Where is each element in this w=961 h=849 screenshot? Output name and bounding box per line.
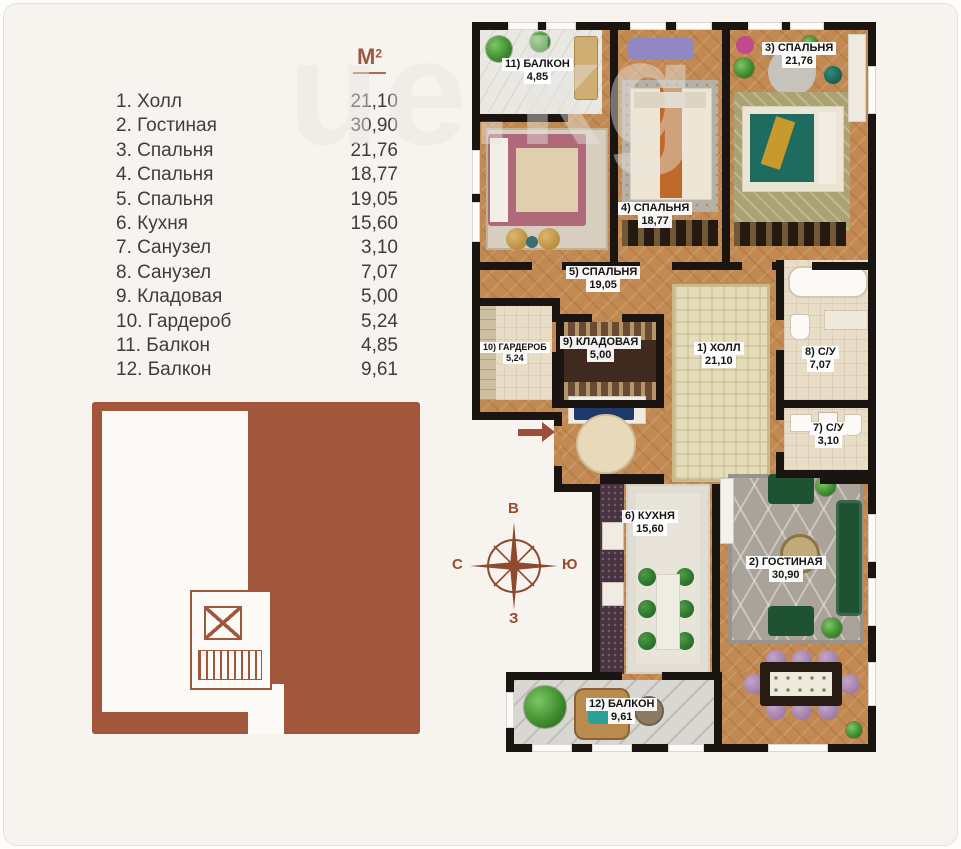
window	[506, 692, 514, 728]
legend-room-name: 1. Холл	[116, 90, 182, 114]
compass-north-label: С	[452, 556, 463, 573]
legend-row: 2. Гостиная30,90	[116, 114, 398, 138]
bedroom3-chair	[736, 36, 754, 54]
plant-icon	[846, 722, 862, 738]
window	[868, 514, 876, 562]
legend-room-name: 5. Спальня	[116, 188, 213, 212]
wall	[776, 400, 868, 408]
kitchen-table	[656, 574, 680, 650]
bedroom4-lounge	[628, 38, 694, 60]
legend-room-name: 11. Балкон	[116, 334, 210, 358]
area-unit-header: М2	[353, 44, 386, 74]
wall	[776, 452, 784, 470]
kitchen-chair	[638, 600, 656, 618]
unit-exponent: 2	[375, 47, 382, 61]
legend-row: 7. Санузел3,10	[116, 236, 398, 260]
legend-room-area: 5,00	[361, 285, 398, 309]
window	[868, 66, 876, 114]
kitchen-chair	[638, 568, 656, 586]
legend-row: 12. Балкон9,61	[116, 358, 398, 382]
legend-room-area: 7,07	[361, 261, 398, 285]
legend-row: 9. Кладовая5,00	[116, 285, 398, 309]
wall	[480, 114, 568, 122]
bedroom5-pillows	[490, 138, 508, 222]
wall	[672, 262, 742, 270]
window	[868, 662, 876, 706]
kitchen-sink	[602, 582, 624, 606]
legend-row: 3. Спальня21,76	[116, 139, 398, 163]
window	[630, 22, 666, 30]
legend-room-area: 15,60	[350, 212, 398, 236]
window	[472, 150, 480, 194]
wall	[722, 30, 730, 262]
bathtub	[788, 266, 868, 298]
legend-room-name: 3. Спальня	[116, 139, 213, 163]
bedroom5-side-table	[526, 236, 538, 248]
room-label-balcony-11: 11) БАЛКОН4,85	[502, 58, 573, 84]
room-label-storage-9: 9) КЛАДОВАЯ5,00	[560, 336, 641, 362]
legend-row: 6. Кухня15,60	[116, 212, 398, 236]
legend-row: 1. Холл21,10	[116, 90, 398, 114]
legend-room-name: 10. Гардероб	[116, 310, 231, 334]
legend-room-area: 21,76	[350, 139, 398, 163]
window	[868, 578, 876, 626]
entry-round-rug	[576, 414, 636, 474]
window	[508, 22, 538, 30]
wall	[656, 322, 664, 408]
room-label-bedroom-5: 5) СПАЛЬНЯ19,05	[566, 266, 640, 292]
legend-room-name: 9. Кладовая	[116, 285, 222, 309]
bedroom5-quilt	[516, 148, 578, 212]
plant-icon	[734, 58, 754, 78]
room-label-bedroom-3: 3) СПАЛЬНЯ21,76	[762, 42, 836, 68]
stairs-icon	[198, 650, 262, 680]
legend-room-area: 5,24	[361, 310, 398, 334]
bedroom5-armchair	[538, 228, 560, 250]
window	[532, 744, 572, 752]
legend-room-name: 12. Балкон	[116, 358, 211, 382]
apartment-floorplan: 11) БАЛКОН4,85 3) СПАЛЬНЯ21,76 4) СПАЛЬН…	[472, 22, 876, 752]
building-notch	[248, 684, 284, 734]
wall	[556, 322, 564, 408]
wall	[480, 298, 560, 306]
kitchen-stove	[602, 522, 624, 550]
window	[676, 22, 712, 30]
hall-rug	[672, 284, 770, 482]
entrance-arrow-icon	[518, 429, 542, 436]
kitchen-chair	[638, 632, 656, 650]
kitchen-counter	[600, 484, 624, 674]
legend-room-area: 9,61	[361, 358, 398, 382]
legend-room-name: 6. Кухня	[116, 212, 188, 236]
legend-room-name: 4. Спальня	[116, 163, 213, 187]
room-label-kitchen-6: 6) КУХНЯ15,60	[622, 510, 678, 536]
entrance-arrow-tip	[542, 422, 555, 442]
living-sofa	[836, 500, 862, 616]
plant-icon	[524, 686, 566, 728]
legend-row: 11. Балкон4,85	[116, 334, 398, 358]
legend-room-area: 30,90	[350, 114, 398, 138]
room-label-bath-8: 8) С/У7,07	[802, 346, 839, 372]
wall	[480, 262, 532, 270]
room-label-living-2: 2) ГОСТИНАЯ30,90	[746, 556, 826, 582]
bedroom3-wardrobe	[734, 222, 846, 246]
wall	[556, 314, 592, 322]
floorplan-card: М2 1. Холл21,10 2. Гостиная30,90 3. Спал…	[3, 3, 958, 846]
legend-room-area: 19,05	[350, 188, 398, 212]
toilet	[790, 314, 810, 340]
wall	[776, 260, 784, 320]
room-label-wardrobe-10: 10) ГАРДЕРОБ5,24	[480, 342, 550, 364]
window	[768, 744, 828, 752]
window	[748, 22, 782, 30]
building-stair-core	[190, 590, 272, 690]
dining-table-runner	[770, 672, 832, 696]
wall	[622, 314, 664, 322]
bedroom3-dresser	[848, 34, 866, 122]
wall	[514, 672, 622, 680]
room-label-balcony-12: 12) БАЛКОН9,61	[586, 698, 657, 724]
entry-door-opening	[554, 426, 562, 466]
living-armchair	[768, 474, 814, 504]
wall	[812, 262, 868, 270]
building-locator-diagram	[92, 402, 420, 734]
sink-cabinet	[824, 310, 868, 330]
window	[668, 744, 704, 752]
legend-room-area: 21,10	[350, 90, 398, 114]
wall	[610, 30, 618, 262]
unit-letter: М	[357, 44, 375, 69]
legend-room-area: 4,85	[361, 334, 398, 358]
legend-row: 5. Спальня19,05	[116, 188, 398, 212]
wall	[820, 474, 868, 484]
room-label-bath-7: 7) С/У3,10	[810, 422, 847, 448]
dining-chair	[840, 674, 860, 694]
legend-room-area: 18,77	[350, 163, 398, 187]
window	[592, 744, 632, 752]
room-legend: 1. Холл21,10 2. Гостиная30,90 3. Спальня…	[116, 90, 398, 383]
bedroom4-pillows	[634, 92, 706, 108]
elevator-icon	[204, 606, 242, 640]
legend-row: 4. Спальня18,77	[116, 163, 398, 187]
plant-icon	[530, 32, 550, 52]
wall	[776, 408, 784, 420]
window	[546, 22, 576, 30]
wall	[776, 350, 784, 400]
toilet	[844, 414, 862, 436]
room-label-hall-1: 1) ХОЛЛ21,10	[694, 342, 744, 368]
plant-icon	[822, 618, 842, 638]
room-label-bedroom-4: 4) СПАЛЬНЯ18,77	[618, 202, 692, 228]
living-armchair	[768, 606, 814, 636]
bedroom3-pillows	[818, 112, 836, 184]
legend-room-name: 2. Гостиная	[116, 114, 217, 138]
window	[472, 202, 480, 242]
legend-room-name: 7. Санузел	[116, 236, 211, 260]
wall	[556, 400, 664, 408]
legend-room-area: 3,10	[361, 236, 398, 260]
wall	[714, 672, 722, 752]
plant-icon	[824, 66, 842, 84]
wall	[600, 474, 664, 484]
wall	[712, 484, 720, 680]
window	[790, 22, 824, 30]
balcony-bench	[574, 36, 598, 100]
legend-room-name: 8. Санузел	[116, 261, 211, 285]
bedroom5-armchair	[506, 228, 528, 250]
tv-console	[720, 478, 734, 544]
wall	[662, 672, 720, 680]
sink	[790, 414, 812, 432]
legend-row: 8. Санузел7,07	[116, 261, 398, 285]
legend-row: 10. Гардероб5,24	[116, 310, 398, 334]
